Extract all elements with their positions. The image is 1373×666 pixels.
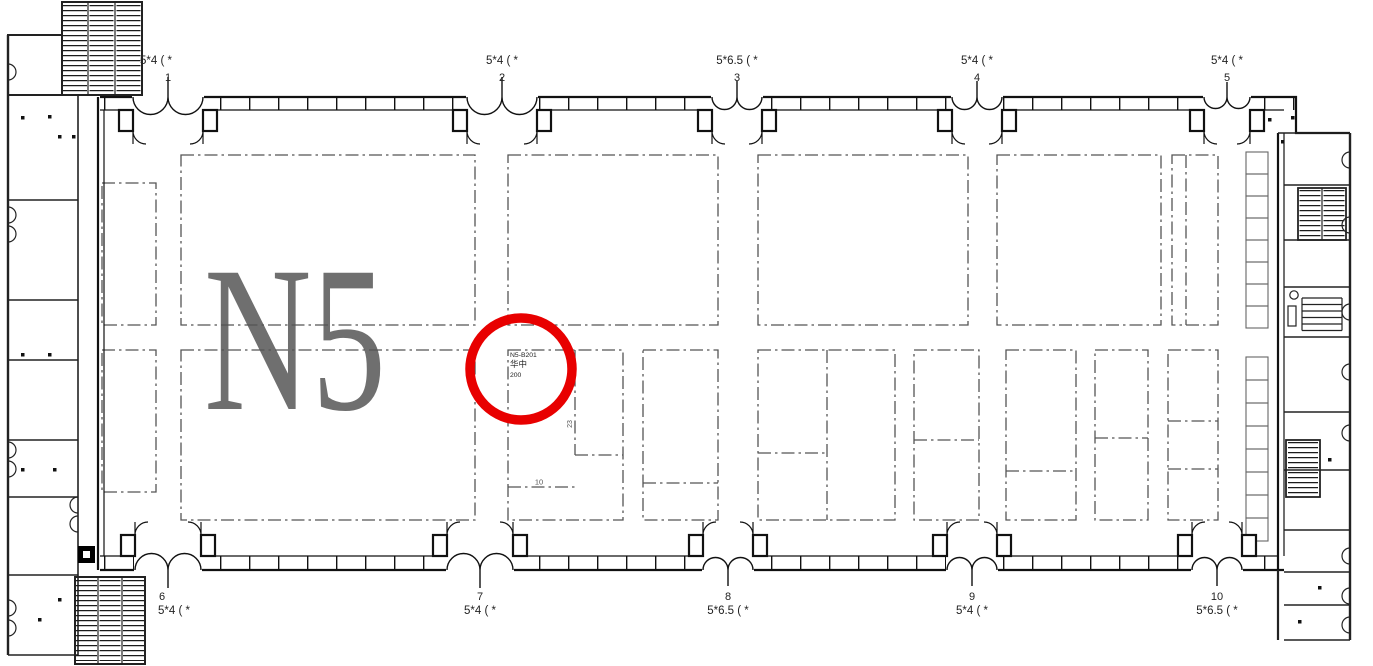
booth-size-text: 200 — [510, 372, 522, 379]
booth-block — [643, 350, 718, 520]
booth-strip-left-upper — [102, 183, 156, 325]
booth-squares-column — [1246, 152, 1268, 541]
left-wing — [8, 2, 145, 664]
door-number: 10 — [1211, 591, 1223, 603]
door-size-label: 5*4 ( * — [961, 55, 993, 67]
door-1: 1 5*4 ( * — [119, 55, 217, 144]
door-size-label: 5*6.5 ( * — [716, 55, 758, 67]
right-wing — [1268, 116, 1350, 640]
depth-dimension: 23 — [567, 420, 574, 428]
door-size-label: 5*4 ( * — [956, 605, 988, 617]
booth-block — [1172, 155, 1218, 325]
dimension-labels: 10 23 — [535, 420, 574, 486]
stairs-bottom-left — [75, 577, 145, 664]
stairs-top-left — [62, 2, 142, 95]
door-7: 7 5*4 ( * — [433, 522, 527, 617]
booth-block — [1006, 350, 1076, 520]
door-5: 5 5*4 ( * — [1190, 55, 1264, 144]
shaft-square — [78, 546, 95, 563]
door-size-label: 5*4 ( * — [486, 55, 518, 67]
door-number: 4 — [974, 72, 980, 84]
floor-plan-page: N5 — [0, 0, 1373, 666]
door-size-label: 5*6.5 ( * — [707, 605, 749, 617]
door-size-label: 5*4 ( * — [140, 55, 172, 67]
stairs-right-lower — [1286, 440, 1320, 497]
escalator-room — [1288, 291, 1342, 331]
door-size-label: 5*4 ( * — [464, 605, 496, 617]
door-size-label: 5*6.5 ( * — [1196, 605, 1238, 617]
width-dimension: 10 — [535, 478, 543, 487]
booth-strip-left-lower — [102, 350, 156, 492]
top-doors: 1 5*4 ( * 2 5*4 ( * 3 5*6.5 ( * — [119, 55, 1264, 144]
booth-id-text: N5-B201 — [510, 352, 537, 359]
door-6: 6 5*4 ( * — [121, 522, 215, 617]
hall-label: N5 — [204, 224, 386, 454]
door-size-label: 5*4 ( * — [1211, 55, 1243, 67]
door-3: 3 5*6.5 ( * — [698, 55, 776, 144]
door-number: 2 — [499, 72, 505, 84]
booth-label[interactable]: N5-B201 华中 200 — [510, 352, 537, 379]
stairs-right-upper — [1298, 188, 1346, 240]
door-number: 6 — [159, 591, 165, 603]
booth-block — [997, 155, 1161, 325]
booth-name-text: 华中 — [510, 359, 527, 369]
booth-block-highlighted — [508, 350, 623, 520]
column-dots — [21, 115, 76, 622]
booth-block — [758, 155, 968, 325]
floor-plan-canvas: N5 — [0, 0, 1373, 666]
booth-block — [914, 350, 979, 520]
door-number: 5 — [1224, 72, 1230, 84]
door-number: 8 — [725, 591, 731, 603]
door-size-label: 5*4 ( * — [158, 605, 190, 617]
inner-door-arcs — [70, 497, 78, 532]
door-number: 9 — [969, 591, 975, 603]
door-number: 3 — [734, 72, 740, 84]
booth-block — [1095, 350, 1148, 520]
door-2: 2 5*4 ( * — [453, 55, 551, 144]
highlight-circle[interactable] — [470, 318, 572, 420]
door-number: 7 — [477, 591, 483, 603]
booth-block — [1168, 350, 1218, 520]
booth-block — [508, 155, 718, 325]
door-number: 1 — [165, 72, 171, 84]
